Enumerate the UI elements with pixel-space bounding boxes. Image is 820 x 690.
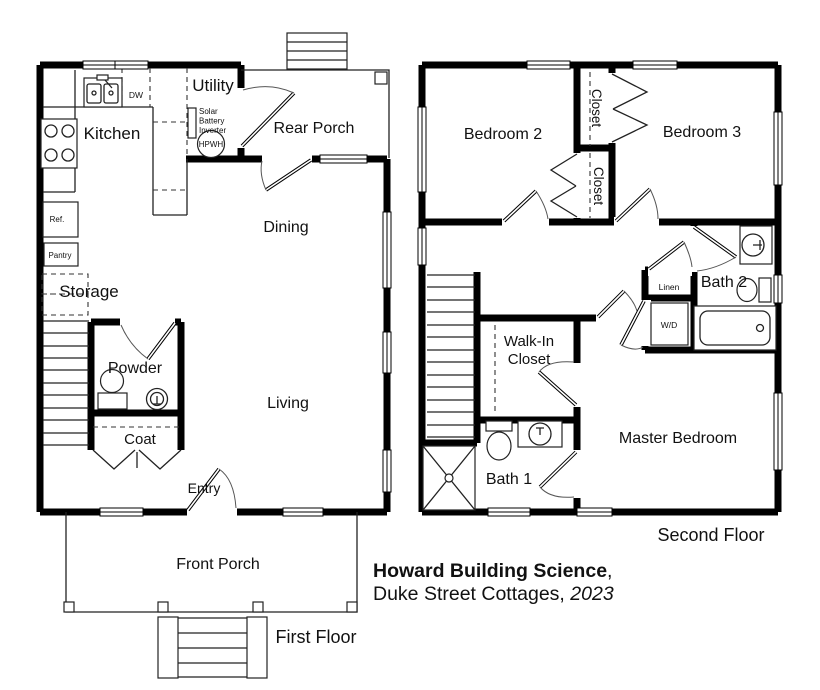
floor-plan-page: Kitchen Utility Rear Porch Dining Living… — [0, 0, 820, 690]
fixture-label-hpwh: HPWH — [199, 140, 224, 149]
porch-post — [253, 602, 263, 612]
window — [527, 61, 570, 69]
window — [283, 508, 323, 516]
window — [774, 393, 782, 470]
bath1-fixtures — [486, 421, 562, 460]
door-bath2 — [694, 227, 736, 271]
porch-post — [375, 72, 387, 84]
vanity-sink — [518, 421, 562, 447]
room-label-utility: Utility — [192, 76, 234, 95]
fixture-label-solar-3: Inverter — [199, 126, 226, 135]
shower — [423, 446, 475, 510]
door-bedroom2 — [504, 191, 548, 221]
room-label-storage: Storage — [59, 282, 119, 301]
fixture-label-dw: DW — [129, 90, 143, 100]
project-name: Duke Street Cottages, — [373, 583, 570, 605]
front-steps — [158, 617, 267, 678]
room-label-entry: Entry — [188, 480, 221, 496]
pedestal-sink — [147, 389, 168, 410]
window — [100, 508, 143, 516]
title-line-2: Duke Street Cottages, 2023 — [373, 583, 693, 606]
fixture-label-wd: W/D — [661, 320, 678, 330]
porch-post — [347, 602, 357, 612]
second-floor-stairs — [427, 275, 475, 437]
front-porch-outline — [64, 512, 357, 678]
room-label-kitchen: Kitchen — [84, 124, 141, 143]
vanity-sink — [740, 226, 772, 264]
room-label-master: Master Bedroom — [619, 430, 737, 447]
kitchen-counters — [41, 68, 187, 266]
window — [418, 228, 426, 265]
fixture-label-pantry: Pantry — [48, 251, 71, 260]
window — [383, 332, 391, 373]
room-label-bath2: Bath 2 — [701, 274, 747, 291]
window — [83, 61, 148, 69]
fixture-label-solar-2: Battery — [199, 117, 224, 126]
door-walk-in-closet — [539, 362, 576, 405]
project-year: 2023 — [570, 583, 613, 605]
room-label-closet-bedroom3: Closet — [589, 89, 604, 128]
bathtub — [694, 306, 776, 350]
room-label-coat: Coat — [124, 431, 157, 448]
title-block: Howard Building Science, Duke Street Cot… — [373, 560, 693, 606]
porch-post — [158, 602, 168, 612]
room-label-walkin-2: Closet — [508, 351, 551, 368]
door-bedroom3 — [616, 189, 658, 221]
solar-inverter-box — [188, 108, 196, 138]
window — [774, 275, 782, 303]
rear-porch-outline — [241, 33, 389, 158]
floor-label-second: Second Floor — [657, 525, 764, 545]
room-label-dining: Dining — [263, 219, 308, 236]
window — [633, 61, 677, 69]
kitchen-sink — [84, 75, 122, 107]
window — [774, 112, 782, 185]
floor-label-first: First Floor — [276, 627, 357, 647]
porch-post — [64, 602, 74, 612]
room-label-linen: Linen — [659, 282, 680, 292]
title-line-1: Howard Building Science, — [373, 560, 693, 583]
room-label-bath1: Bath 1 — [486, 471, 532, 488]
toilet — [486, 421, 512, 460]
window — [418, 107, 426, 192]
room-label-bedroom2: Bedroom 2 — [464, 126, 542, 143]
room-label-closet-bedroom2: Closet — [591, 167, 606, 206]
room-label-bedroom3: Bedroom 3 — [663, 124, 741, 141]
window — [488, 508, 530, 516]
room-label-walkin-1: Walk-In — [504, 333, 554, 350]
second-floor-plan: Bedroom 2 Bedroom 3 Closet Closet Bath 2… — [418, 61, 782, 545]
fixture-label-solar-1: Solar — [199, 107, 218, 116]
door-bath1 — [540, 452, 576, 497]
door-powder — [121, 323, 175, 359]
door-utility-porch — [242, 87, 294, 146]
first-floor-plan: Kitchen Utility Rear Porch Dining Living… — [40, 33, 391, 678]
door-linen — [649, 242, 692, 269]
first-floor-stairs — [43, 321, 89, 445]
room-label-front-porch: Front Porch — [176, 556, 260, 573]
room-label-rear-porch: Rear Porch — [274, 120, 355, 137]
room-label-powder: Powder — [108, 360, 163, 377]
window — [320, 155, 367, 163]
fixture-label-ref: Ref. — [50, 215, 65, 224]
window — [577, 508, 612, 516]
window — [383, 212, 391, 288]
room-label-living: Living — [267, 395, 309, 412]
window — [383, 450, 391, 492]
firm-name: Howard Building Science — [373, 560, 607, 582]
